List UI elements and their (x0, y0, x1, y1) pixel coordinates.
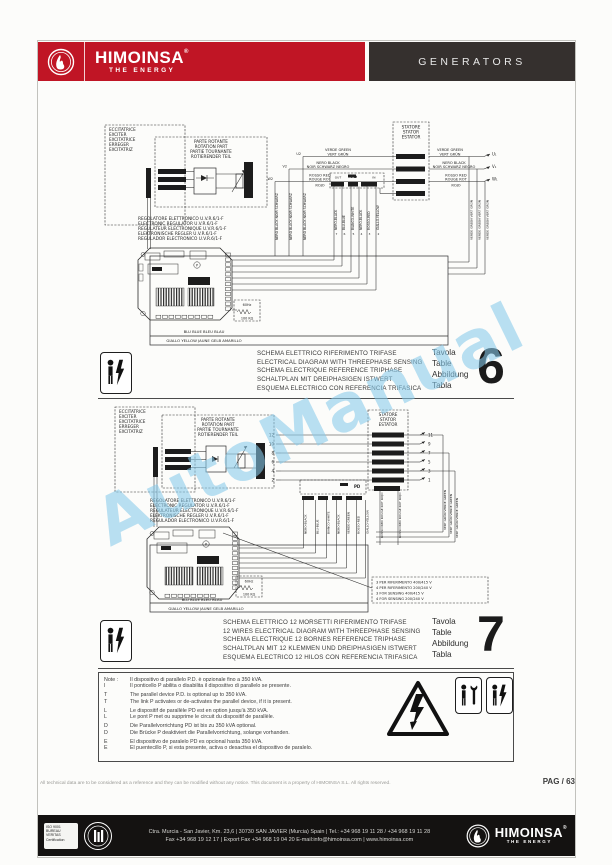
himoinsa-logo-icon (38, 42, 85, 81)
footer-brand-tagline: THE ENERGY (507, 840, 567, 845)
ref-line-1: 4 PER RIFERIMENTO 200/240 V (376, 586, 432, 590)
label-red-left2: ROUGE ROT (309, 178, 331, 182)
label-exciter-es: EXCITATRIZ (119, 429, 143, 434)
label-red-right3: ROJO (451, 184, 460, 188)
tavola6-1: Table (432, 358, 468, 369)
stator-labels: STATORE STATOR ESTATOR (402, 125, 421, 140)
person-lightning-icon (105, 357, 127, 389)
caption6-line-it: SCHEMA ELETTRICO RIFERIMENTO TRIFASE (257, 350, 422, 359)
vert-green-2: VERT GRÜN VERDE GREEN (454, 498, 459, 538)
himoinsa-logo-icon (465, 823, 491, 849)
maintenance-pictogram (455, 677, 482, 714)
label-regulator-es: REGULADOR ELECTRONICO U.V.R.6/1-F (150, 518, 235, 524)
vert-black-0: NERO BLACK NOIR SCHWARZ (275, 192, 279, 240)
label-rotating-de: ROTIERENDER TEIL (198, 432, 239, 437)
label-blu: BLU BLUE BLEU BLAU (184, 329, 225, 334)
pd-term-4: 3 (368, 232, 370, 236)
pd-wire-0: NERO-BLACK (334, 209, 338, 230)
pd-term-3: 4 (360, 232, 362, 236)
label-stator-es: ESTATOR (402, 135, 421, 140)
stator-labels: STATORE STATOR ESTATOR (379, 412, 398, 427)
label-pd: PD (354, 484, 361, 489)
pd-wire-2: BIANCO-WHITE (351, 207, 355, 230)
resistor-value: 100 KΩ (241, 317, 254, 321)
left-terminal-numbers: 12 10 8 6 4 2 (269, 432, 275, 482)
footer-registered-mark: ® (563, 825, 567, 831)
vert-red-1: ROSSO RED ROUGE ROT ROJO (398, 492, 402, 538)
resistor-value: 100 KΩ (243, 593, 256, 597)
pd-wire-5: ROSSO-RED (357, 515, 361, 534)
pd-term-1: 6 (343, 232, 345, 236)
tavola-block-7: Tavola Table Abbildung Tabla (432, 616, 468, 660)
pd-labels: PD OUT IN (335, 174, 376, 180)
pd-wire-3: NERO-BLACK (359, 209, 363, 230)
label-black-left2: NOIR SCHWARZ NEGRO (307, 165, 350, 169)
term-12: 12 (269, 432, 275, 437)
term-5: 5 (428, 459, 431, 464)
caption7-line-de: SCHALTPLAN MIT 12 KLEMMEN UND DREIPHASIG… (223, 645, 420, 654)
label-green-right2: VERT GRÜN (440, 151, 461, 156)
header-brand-bar: HIMOINSA® THE ENERGY (38, 42, 365, 81)
winding-bars (153, 433, 404, 501)
header-section-bar: GENERATORS (369, 42, 575, 81)
footer-brand-name: HIMOINSA (495, 825, 563, 840)
label-giallo: GIALLO YELLOW JAUNE GELB AMARILLO (166, 338, 241, 343)
cert-line-3: Certification (46, 838, 76, 842)
vert-green-2: VERDE GREEN VERT GRÜN (484, 200, 489, 240)
pd-wire-4: ROSSO-RED (367, 211, 371, 230)
term-11: 11 (428, 432, 434, 437)
page-number: PAG / 63 (505, 777, 575, 786)
ref-line-3: 4 FOR SENSING 200/240 V (376, 597, 424, 601)
note-text-3: The link P activates or de-activates the… (130, 699, 292, 705)
tavola7-2: Abbildung (432, 638, 468, 649)
terminal-v2: V2 (283, 165, 287, 169)
caption6-line-fr: SCHEMA ELECTRIQUE REFERENCE TRIPHASE (257, 367, 422, 376)
vertical-wire-labels: ROSSO RED ROUGE ROT ROJO ROSSO RED ROUGE… (380, 490, 459, 538)
note-text-9: El puentecillo P, si esta presente, acti… (130, 745, 312, 751)
vert-green-1: VERT GRÜN VERDE GREEN (448, 494, 453, 534)
board-p-jumper: P (196, 264, 198, 268)
label-pd-out: OUT (335, 176, 342, 180)
rotating-part-labels: PARTE ROTANTE ROTATION PART PARTIE TOURN… (197, 417, 239, 437)
note-text-1: Il ponticello P abilita o disabilita il … (130, 683, 291, 689)
pd-wire-0: NERO-BLACK (304, 513, 308, 534)
pd-wire-labels: NERO-BLACK BLU-BLUE BIANCO-WHITE NERO-BL… (334, 205, 380, 230)
address-line-2: Fax +34 968 19 12 17 | Export Fax +34 96… (120, 836, 459, 844)
label-stator-es: ESTATOR (379, 422, 398, 427)
note-margin-3: T (104, 699, 130, 705)
pd-term-5: 2 (377, 232, 379, 236)
vert-red-0: ROSSO RED ROUGE ROT ROJO (380, 492, 384, 538)
term-9: 9 (428, 441, 431, 446)
cert-line-2: BUREAU VERITAS (46, 829, 76, 838)
tavola6-0: Tavola (432, 347, 468, 358)
exciter-labels: ECCITATRICE EXCITER EXCITATRICE ERREGER … (109, 127, 136, 152)
label-black-right2: NOIR SCHWARZ NEGRO (433, 165, 476, 169)
ref-line-0: 3 PER RIFERIMENTO 400/415 V (376, 581, 432, 585)
right-terminal-numbers: 11 9 7 5 3 1 (428, 432, 434, 482)
wiring-diagram-table7: ECCITATRICE EXCITER EXCITATRICE ERREGER … (98, 398, 518, 616)
label-pd-in: IN (372, 176, 375, 180)
address-line-1: Ctra. Murcia - San Javier, Km. 23,6 | 30… (120, 828, 459, 836)
label-regulator-es: REGULADOR ELECTRONICO U.V.R.6/1-F (138, 236, 223, 242)
phase-terminals: U₁ V₁ W₁ (492, 152, 498, 182)
electric-danger-pictogram (486, 677, 513, 714)
pd-wire-4: VERDE-GREEN (347, 512, 351, 534)
terminal-u1: U₁ (492, 152, 497, 157)
person-wrench-icon (459, 682, 478, 710)
registered-mark: ® (184, 49, 189, 55)
rectifier-and-varistor (194, 168, 245, 194)
brand-text: HIMOINSA® THE ENERGY (95, 49, 189, 75)
section-title: GENERATORS (418, 56, 526, 68)
resistor-freq: 60Hz (245, 580, 254, 584)
label-blu: BLU BLUE BLEU BLAU (182, 597, 223, 602)
vert-green-0: VERDE GREEN VERT GRÜN (468, 200, 473, 240)
warning-triangle-icon (386, 679, 450, 744)
caption6-line-en: ELECTRICAL DIAGRAM WITH THREEPHASE SENSI… (257, 359, 422, 368)
terminal-w1: W₁ (492, 177, 498, 182)
note-margin-7: D (104, 730, 130, 736)
person-lightning-icon (105, 625, 127, 657)
wiring-diagram-table6: ECCITATRICE EXCITER EXCITATRICE ERREGER … (98, 112, 518, 348)
certification-badge: ISO 9001 BUREAU VERITAS Certification (44, 823, 78, 849)
pd-wire-6: GIALLO-YELLOW (366, 510, 370, 534)
regulator-labels: REGOLATORE ELETTRONICO U.V.R.6/1-F ELECT… (150, 498, 239, 524)
brand-name: HIMOINSA (95, 48, 184, 67)
tavola6-2: Abbildung (432, 369, 468, 380)
pd-wire-3: NERO-BLACK (337, 513, 341, 534)
rotating-part-labels: PARTE ROTANTE ROTATION PART PARTIE TOURN… (190, 139, 232, 159)
pd-wire-2: BIANCO-WHITE (327, 511, 331, 534)
disclaimer-text: All technical data are to be considered … (40, 781, 391, 786)
label-rotating-de: ROTIERENDER TEIL (191, 154, 232, 159)
vert-black-1: NERO BLACK NOIR SCHWARZ (289, 192, 293, 240)
note-text-7: Die Brücke P deaktiviert die Parallelvor… (130, 730, 290, 736)
caption-table6: SCHEMA ELETTRICO RIFERIMENTO TRIFASE ELE… (257, 350, 422, 394)
danger-pictogram-6 (100, 352, 132, 394)
manual-page: HIMOINSA® THE ENERGY GENERATORS AutoManu… (0, 0, 612, 865)
footer-bar: ISO 9001 BUREAU VERITAS Certification Ct… (38, 815, 575, 856)
winding-bars (146, 154, 425, 198)
label-red-left3: ROJO (315, 184, 324, 188)
terminal-v1: V₁ (492, 164, 497, 169)
caption6-line-de: SCHALTPLAN MIT DREIPHASIGEN ISTWERT (257, 376, 422, 385)
vertical-wire-labels: NERO BLACK NOIR SCHWARZ NERO BLACK NOIR … (275, 192, 489, 240)
caption6-line-es: ESQUEMA ELECTRICO CON REFERENCIA TRIFASI… (257, 385, 422, 394)
pd-wire-1: BLU-BLUE (342, 215, 346, 230)
caption7-line-it: SCHEMA ELETTRICO 12 MORSETTI RIFERIMENTO… (223, 619, 420, 628)
footer-brand: HIMOINSA® THE ENERGY (465, 823, 567, 849)
terminal-w2: W2 (267, 177, 273, 181)
note-margin-5: L (104, 714, 130, 720)
board-p-jumper: P (205, 543, 207, 547)
caption7-line-es: ESQUEMA ELECTRICO 12 HILOS CON REFERENCI… (223, 654, 420, 663)
tavola7-1: Table (432, 627, 468, 638)
winding2-terminals: U2 V2 W2 (267, 152, 301, 181)
label-giallo: GIALLO YELLOW JAUNE GELB AMARILLO (168, 606, 243, 611)
caption7-line-en: 12 WIRES ELECTRICAL DIAGRAM WITH THREEPH… (223, 628, 420, 637)
label-red-right2: ROUGE ROT (445, 178, 467, 182)
footer-address: Ctra. Murcia - San Javier, Km. 23,6 | 30… (114, 828, 465, 844)
vert-black-2: NERO BLACK NOIR SCHWARZ (303, 192, 307, 240)
term-1: 1 (428, 477, 431, 482)
term-10: 10 (269, 441, 275, 446)
tavola7-0: Tavola (432, 616, 468, 627)
sensing-reference-box: 3 PER RIFERIMENTO 400/415 V 4 PER RIFERI… (376, 581, 432, 602)
ref-line-2: 3 FOR SENSING 400/415 V (376, 592, 424, 596)
pd-term-0: 7 (335, 232, 337, 236)
note-text-5: Le pont P met ou supprime le circuit du … (130, 714, 274, 720)
tavola-block-6: Tavola Table Abbildung Tabla (432, 347, 468, 391)
brand-tagline: THE ENERGY (109, 68, 189, 75)
notes-box: Note :Il dispositivo di parallelo P.D. è… (98, 672, 514, 762)
note-margin-1: I (104, 683, 130, 689)
regulator-board (147, 527, 253, 599)
pd-wire-5: GIALLO-YELLOW (376, 205, 380, 230)
danger-pictogram-7 (100, 620, 132, 662)
vert-green-1: VERDE GREEN VERT GRÜN (476, 200, 481, 240)
caption7-line-fr: SCHEMA ELECTRIQUE 12 BORNES REFERENCE TR… (223, 636, 420, 645)
divider-after-table7 (98, 668, 514, 669)
pd-wire-1: BLU-BLUE (316, 519, 320, 534)
tavola6-3: Tabla (432, 380, 468, 391)
regulator-labels: REGOLATORE ELETTRONICO U.V.R.6/1-F ELECT… (138, 216, 227, 242)
caption-table7: SCHEMA ELETTRICO 12 MORSETTI RIFERIMENTO… (223, 619, 420, 663)
exciter-labels: ECCITATRICE EXCITER EXCITATRICE ERREGER … (119, 409, 146, 434)
pd-term-2: 5 (352, 232, 354, 236)
tavola7-3: Tabla (432, 649, 468, 660)
terminal-u2: U2 (296, 152, 301, 156)
person-lightning-icon (490, 682, 509, 710)
note-margin-9: E (104, 745, 130, 751)
vert-green-0: VERT GRÜN VERDE GREEN (442, 490, 447, 530)
resistor-freq: 60Hz (243, 303, 252, 307)
label-green-left2: VERT GRÜN (328, 151, 349, 156)
certification-seal-icon (82, 820, 114, 852)
label-exciter-es: EXCITATRIZ (109, 147, 133, 152)
label-pd: PD (351, 174, 357, 179)
